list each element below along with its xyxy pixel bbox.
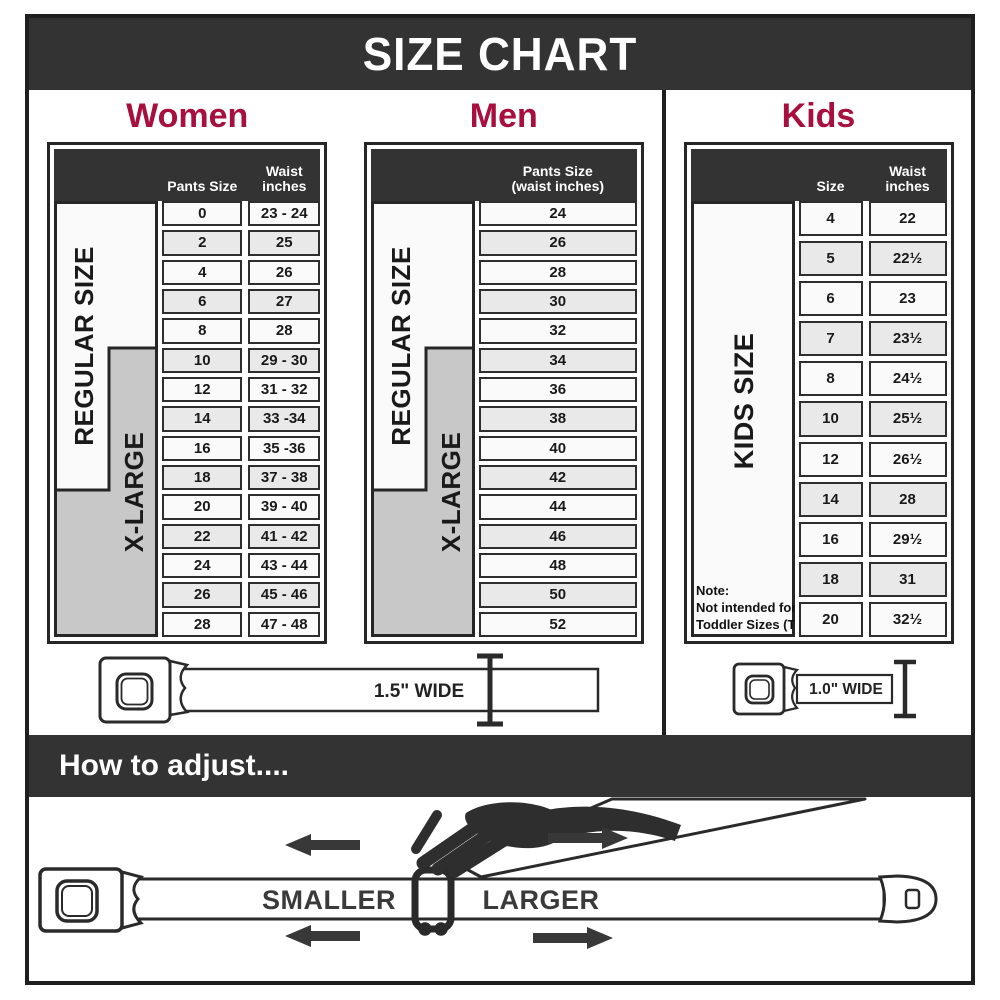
pants-size-cell: 16 [162,436,242,461]
size-cell: 6 [799,281,863,316]
main-area: Women Pants Size Waist inches [29,90,971,735]
women-rows: 023 - 24 225 426 627 828 1029 - 30 1231 … [162,201,320,637]
pants-size-cell: 24 [479,201,637,226]
table-row: 1029 - 30 [162,348,320,373]
pants-size-cell: 20 [162,494,242,519]
toddler-note-line1: Note: [696,583,729,598]
waist-cell: 22 [869,201,947,236]
size-cell: 12 [799,442,863,477]
waist-column-header-line1: Waist [266,164,303,180]
table-row: 422 [799,201,947,236]
kids-belt-illustration: 1.0" WIDE [666,646,971,734]
adult-belt-area: 1.5" WIDE [29,644,662,735]
kids-section: Kids Size Waist inches KIDS SIZE Not [666,90,971,644]
pants-size-cell: 32 [479,318,637,343]
table-row: 24 [479,201,637,226]
xlarge-label: X-LARGE [119,432,149,553]
kids-rows: 422 522½ 623 723½ 824½ 1025½ 1226½ 1428 … [799,201,947,637]
pants-size-cell: 26 [162,582,242,607]
waist-column-header-line2: inches [262,179,306,195]
table-row: 2847 - 48 [162,612,320,637]
title-band: SIZE CHART [29,18,971,90]
waist-cell: 39 - 40 [248,494,320,519]
size-cell: 16 [799,522,863,557]
table-row: 824½ [799,361,947,396]
table-row: 828 [162,318,320,343]
table-row: 36 [479,377,637,402]
table-row: 2645 - 46 [162,582,320,607]
waist-cell: 23 - 24 [248,201,320,226]
table-row: 40 [479,436,637,461]
arrow-right-icon [533,927,613,949]
women-size-range-graphic: REGULAR SIZE X-LARGE [54,201,158,637]
waist-cell: 35 -36 [248,436,320,461]
regular-size-label: REGULAR SIZE [386,246,416,446]
pants-size-column-header-line2: (waist inches) [511,179,604,195]
pants-size-cell: 12 [162,377,242,402]
size-cell: 8 [799,361,863,396]
waist-cell: 32½ [869,602,947,637]
pants-size-cell: 46 [479,524,637,549]
waist-cell: 37 - 38 [248,465,320,490]
adjustment-illustration-area: SMALLER LARGER [29,797,971,981]
table-row: 44 [479,494,637,519]
table-row: 1428 [799,482,947,517]
belt-width-label: 1.5" WIDE [374,681,464,702]
adult-belt-illustration: 1.5" WIDE [29,646,662,734]
kids-heading: Kids [782,90,856,142]
size-cell: 14 [799,482,863,517]
pants-size-cell: 52 [479,612,637,637]
pants-size-cell: 42 [479,465,637,490]
pants-size-cell: 26 [479,230,637,255]
xlarge-label: X-LARGE [436,432,466,553]
table-row: 1629½ [799,522,947,557]
waist-cell: 27 [248,289,320,314]
table-row: 627 [162,289,320,314]
pants-size-cell: 10 [162,348,242,373]
waist-cell: 45 - 46 [248,582,320,607]
table-row: 1231 - 32 [162,377,320,402]
kids-size-range-graphic: KIDS SIZE Note: Not intended for Toddler… [691,201,795,637]
belt-tip [880,876,936,922]
table-row: 52 [479,612,637,637]
men-section: Men Pants Size (waist inches) [346,90,663,644]
table-row: 46 [479,524,637,549]
table-row: 26 [479,230,637,255]
pants-size-cell: 18 [162,465,242,490]
pants-size-cell: 36 [479,377,637,402]
table-row: 1433 -34 [162,406,320,431]
waist-cell: 28 [869,482,947,517]
smaller-label: SMALLER [262,885,396,915]
men-size-range-graphic: REGULAR SIZE X-LARGE [371,201,475,637]
table-row: 023 - 24 [162,201,320,226]
outer-frame: SIZE CHART Women Pants Size Waist inches [25,14,975,985]
pants-size-cell: 4 [162,260,242,285]
pants-size-cell: 8 [162,318,242,343]
size-cell: 7 [799,321,863,356]
table-row: 2443 - 44 [162,553,320,578]
kids-belt-area: 1.0" WIDE [666,644,971,735]
men-size-table: Pants Size (waist inches) REGULAR SIZE X… [364,142,644,644]
table-row: 1831 [799,562,947,597]
table-row: 2039 - 40 [162,494,320,519]
waist-cell: 22½ [869,241,947,276]
arrow-left-icon [285,925,360,947]
men-rows: 24 26 28 30 32 34 36 38 40 42 44 [479,201,637,637]
how-to-adjust-heading: How to adjust.... [59,749,289,783]
kids-panel: Kids Size Waist inches KIDS SIZE Not [666,90,971,735]
table-row: 1635 -36 [162,436,320,461]
waist-cell: 33 -34 [248,406,320,431]
table-row: 1226½ [799,442,947,477]
pants-size-cell: 38 [479,406,637,431]
men-heading: Men [470,90,538,142]
waist-cell: 23 [869,281,947,316]
pants-size-cell: 22 [162,524,242,549]
waist-cell: 31 - 32 [248,377,320,402]
women-heading: Women [126,90,248,142]
pants-size-cell: 28 [162,612,242,637]
kids-size-label: KIDS SIZE [729,333,759,470]
pants-size-column-header-line1: Pants Size [523,164,593,180]
arrow-left-icon [285,834,360,856]
pants-size-cell: 44 [479,494,637,519]
table-row: 1837 - 38 [162,465,320,490]
pants-size-cell: 24 [162,553,242,578]
table-row: 48 [479,553,637,578]
table-row: 34 [479,348,637,373]
waist-cell: 41 - 42 [248,524,320,549]
pants-size-cell: 2 [162,230,242,255]
table-row: 42 [479,465,637,490]
kids-size-table: Size Waist inches KIDS SIZE Note: Not in… [684,142,954,644]
page-title: SIZE CHART [363,27,638,81]
pants-size-cell: 34 [479,348,637,373]
belt-width-label: 1.0" WIDE [809,681,883,698]
pants-size-cell: 6 [162,289,242,314]
adjustment-illustration: SMALLER LARGER [29,797,971,981]
how-to-adjust-band: How to adjust.... [29,735,971,797]
size-column-header: Size [816,179,844,195]
waist-cell: 24½ [869,361,947,396]
buckle-icon [40,869,141,931]
regular-size-label: REGULAR SIZE [69,246,99,446]
adult-panel: Women Pants Size Waist inches [29,90,662,735]
waist-cell: 25 [248,230,320,255]
waist-cell: 43 - 44 [248,553,320,578]
waist-column-header-line2: inches [885,179,929,195]
pants-size-cell: 40 [479,436,637,461]
table-row: 723½ [799,321,947,356]
width-measure-icon [894,662,916,716]
table-row: 2032½ [799,602,947,637]
pants-size-cell: 48 [479,553,637,578]
table-row: 30 [479,289,637,314]
toddler-note-line3: Toddler Sizes (T) [696,617,795,632]
waist-column-header-line1: Waist [889,164,926,180]
men-table-header: Pants Size (waist inches) [371,149,637,201]
table-row: 38 [479,406,637,431]
pants-size-column-header: Pants Size [167,179,237,195]
women-table-header: Pants Size Waist inches [54,149,320,201]
table-row: 426 [162,260,320,285]
waist-cell: 29½ [869,522,947,557]
waist-cell: 26½ [869,442,947,477]
buckle-icon [734,664,797,714]
table-row: 28 [479,260,637,285]
size-cell: 4 [799,201,863,236]
women-section: Women Pants Size Waist inches [29,90,346,644]
table-row: 623 [799,281,947,316]
table-row: 2241 - 42 [162,524,320,549]
kids-table-header: Size Waist inches [691,149,947,201]
waist-cell: 25½ [869,401,947,436]
pants-size-cell: 14 [162,406,242,431]
buckle-icon [100,658,187,722]
waist-cell: 23½ [869,321,947,356]
women-size-table: Pants Size Waist inches REGULAR SIZE [47,142,327,644]
waist-cell: 31 [869,562,947,597]
pants-size-cell: 28 [479,260,637,285]
toddler-note-line2: Not intended for [696,600,795,615]
waist-cell: 47 - 48 [248,612,320,637]
size-cell: 5 [799,241,863,276]
size-chart-page: SIZE CHART Women Pants Size Waist inches [0,0,1000,1000]
size-cell: 20 [799,602,863,637]
table-row: 522½ [799,241,947,276]
pants-size-cell: 30 [479,289,637,314]
size-cell: 18 [799,562,863,597]
table-row: 1025½ [799,401,947,436]
larger-label: LARGER [483,885,600,915]
size-cell: 10 [799,401,863,436]
pants-size-cell: 50 [479,582,637,607]
waist-cell: 29 - 30 [248,348,320,373]
table-row: 225 [162,230,320,255]
waist-cell: 28 [248,318,320,343]
table-row: 32 [479,318,637,343]
pants-size-cell: 0 [162,201,242,226]
table-row: 50 [479,582,637,607]
waist-cell: 26 [248,260,320,285]
